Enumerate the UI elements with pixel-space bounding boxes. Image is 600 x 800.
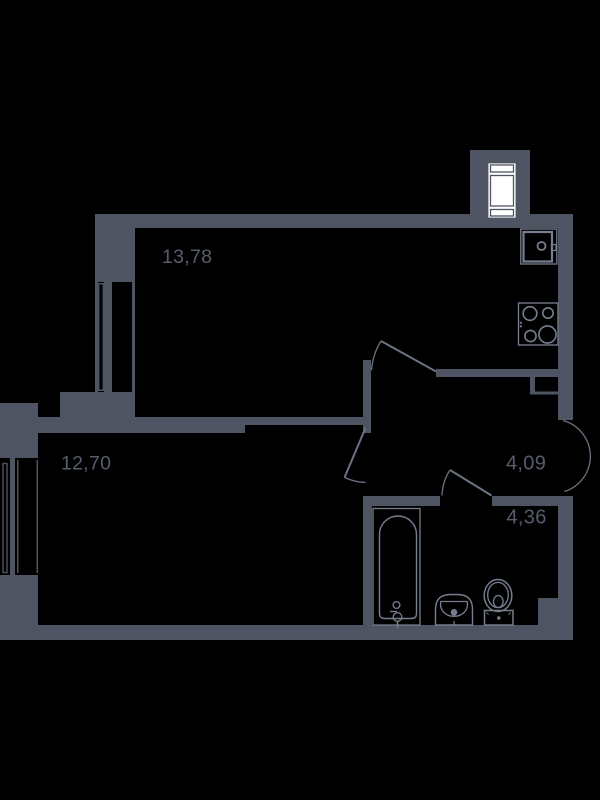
door-entry-arc [563, 421, 590, 492]
room-label-bathroom: 4,36 [507, 507, 547, 529]
stove-knob-dot [520, 325, 522, 327]
window-edge-line [95, 282, 98, 392]
room-label-bedroom: 12,70 [61, 453, 111, 475]
duct-shaft-border-bottom [530, 392, 558, 395]
wall-bottom [0, 625, 573, 640]
door-bedroom-arc [345, 478, 366, 483]
wall-step-block [60, 392, 135, 433]
stove-knob-dot [520, 322, 522, 324]
wall-top-main [95, 214, 470, 228]
washbasin-drain-icon [451, 609, 458, 616]
kitchen-sink [521, 229, 557, 264]
window-mid-line [10, 458, 15, 575]
wall-bath-left [363, 506, 372, 625]
wall-left-bedroom-upper [0, 403, 38, 458]
door-bathroom-arc [442, 470, 450, 496]
toilet-tank-tick [509, 613, 511, 615]
wall-bath-pilaster [538, 598, 558, 625]
window-niche-line [110, 282, 112, 392]
window-frame [99, 284, 104, 391]
shaft-window [488, 163, 517, 219]
door-kitchen-arc [372, 341, 382, 370]
window-left-lower [3, 458, 38, 575]
door-bathroom-leaf [450, 470, 492, 496]
door-bedroom-leaf [345, 428, 366, 478]
walls [0, 150, 573, 640]
bathtub [373, 509, 420, 629]
wall-bath-top-right [492, 496, 573, 506]
wall-left-bedroom-lower [0, 575, 38, 630]
duct-shaft-border-left [530, 377, 535, 394]
bathtub-inner [380, 516, 417, 619]
sink-drain-icon [538, 242, 546, 250]
wall-right-upper [558, 214, 573, 420]
washbasin [436, 595, 473, 626]
window-niche-line [17, 460, 19, 573]
wall-partition-thin [240, 417, 371, 425]
toilet-tank-tick [487, 613, 489, 615]
wall-kitchen-partition [436, 369, 560, 377]
burner-icon [525, 330, 536, 341]
doors [345, 341, 591, 496]
room-label-living-kitchen: 13,78 [162, 246, 212, 268]
door-kitchen-leaf [381, 341, 436, 372]
wall-bath-top-left [363, 496, 440, 506]
stove-4-burners [519, 303, 559, 345]
floor-plan: 13,78 12,70 4,09 4,36 [0, 0, 600, 800]
window-left-upper [95, 282, 135, 392]
window-frame [3, 464, 7, 573]
wall-left-upper [95, 214, 135, 282]
toilet-tank-button [497, 616, 501, 620]
window-mid-line [104, 282, 110, 392]
window-niche-edge [132, 282, 135, 392]
burner-icon [523, 307, 537, 321]
bathtub-faucet-icon [393, 613, 402, 622]
room-label-hallway: 4,09 [506, 453, 546, 475]
floor-plan-canvas: 13,78 12,70 4,09 4,36 [0, 0, 600, 800]
burner-icon [539, 326, 556, 343]
toilet [484, 580, 513, 626]
bathtub-drain-icon [393, 602, 400, 609]
wall-right-lower [558, 496, 573, 640]
window-niche-edge [37, 460, 39, 573]
toilet-bowl-drain [494, 596, 504, 608]
burner-icon [543, 308, 553, 318]
